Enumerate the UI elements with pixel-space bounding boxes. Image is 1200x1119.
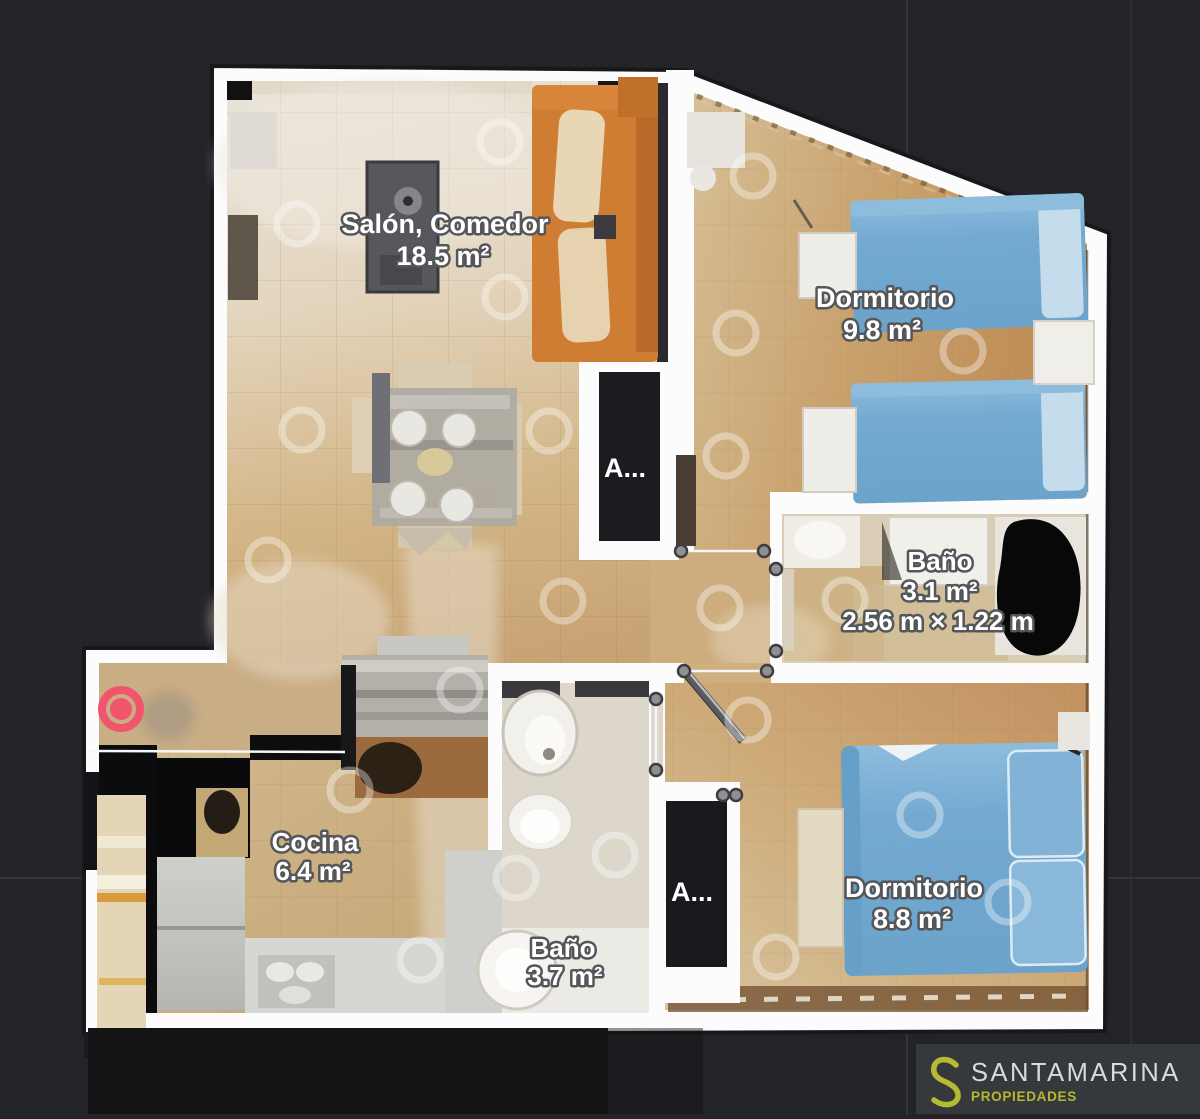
svg-text:Dormitorio: Dormitorio xyxy=(845,873,983,903)
svg-text:6.4 m²: 6.4 m² xyxy=(275,856,350,886)
svg-text:Baño: Baño xyxy=(531,933,596,963)
svg-text:Cocina: Cocina xyxy=(272,827,359,857)
svg-text:3.7 m²: 3.7 m² xyxy=(527,961,602,991)
svg-text:3.1 m²: 3.1 m² xyxy=(902,576,977,606)
svg-text:SANTAMARINA: SANTAMARINA xyxy=(971,1059,1181,1087)
svg-text:8.8 m²: 8.8 m² xyxy=(873,904,951,934)
svg-text:18.5 m²: 18.5 m² xyxy=(396,241,489,271)
svg-text:Dormitorio: Dormitorio xyxy=(816,283,954,313)
svg-text:PROPIEDADES: PROPIEDADES xyxy=(971,1089,1077,1104)
svg-text:Salón, Comedor: Salón, Comedor xyxy=(341,209,549,239)
svg-text:A...: A... xyxy=(604,453,646,483)
svg-text:9.8 m²: 9.8 m² xyxy=(843,315,921,345)
svg-text:2.56 m × 1.22 m: 2.56 m × 1.22 m xyxy=(842,606,1034,636)
svg-text:Baño: Baño xyxy=(908,546,973,576)
svg-text:A...: A... xyxy=(671,877,713,907)
